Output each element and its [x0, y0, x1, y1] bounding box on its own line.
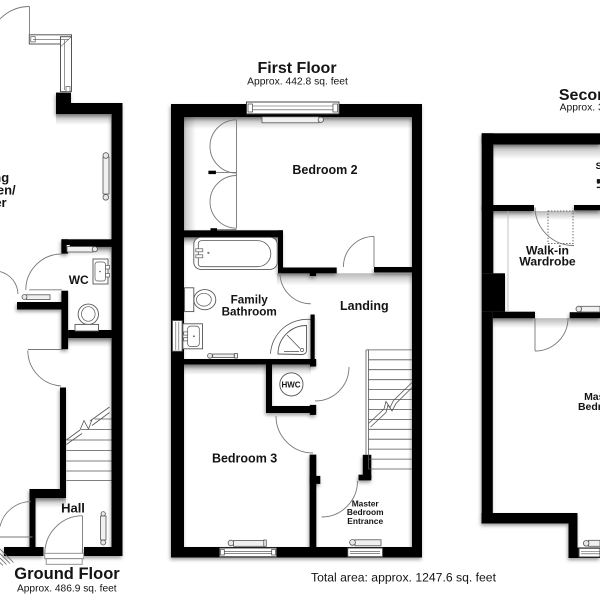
svg-text:Approx. 317.9 sq. feet: Approx. 317.9 sq. feet	[560, 103, 600, 114]
svg-text:Approx. 442.8 sq. feet: Approx. 442.8 sq. feet	[247, 77, 348, 88]
svg-text:Ground Floor: Ground Floor	[14, 565, 120, 583]
svg-text:WC: WC	[69, 273, 89, 287]
svg-text:Second Floor: Second Floor	[559, 87, 600, 104]
svg-text:Bedroom 2: Bedroom 2	[292, 163, 357, 177]
svg-text:Bathroom: Bathroom	[222, 305, 277, 318]
svg-text:Wardrobe: Wardrobe	[519, 255, 576, 269]
svg-text:Hall: Hall	[61, 501, 85, 516]
svg-text:Entrance: Entrance	[347, 516, 383, 526]
svg-text:Total area: approx. 1247.6 sq.: Total area: approx. 1247.6 sq. feet	[311, 571, 497, 585]
svg-text:Landing: Landing	[340, 299, 389, 313]
svg-text:Approx. 486.9 sq. feet: Approx. 486.9 sq. feet	[17, 584, 117, 595]
svg-text:HWC: HWC	[281, 381, 300, 390]
svg-text:Storage: Storage	[596, 161, 600, 172]
svg-text:Bedroom: Bedroom	[578, 401, 600, 413]
svg-text:Diner: Diner	[0, 195, 7, 210]
svg-text:First Floor: First Floor	[257, 60, 336, 77]
svg-text:Bedroom 3: Bedroom 3	[212, 452, 277, 466]
